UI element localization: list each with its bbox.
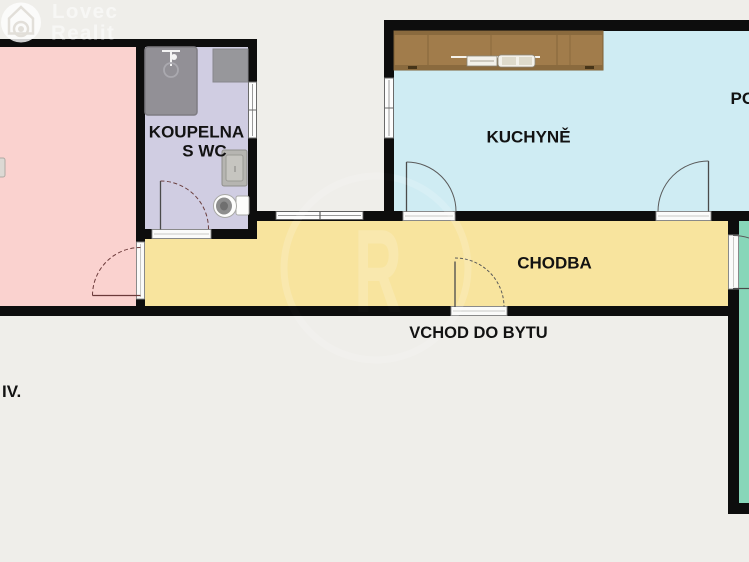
svg-text:CHODBA: CHODBA [517, 254, 592, 273]
svg-text:KOUPELNA: KOUPELNA [149, 123, 244, 142]
svg-text:POKOJ: POKOJ [731, 89, 749, 108]
svg-text:IV.: IV. [2, 382, 21, 401]
svg-text:Realit: Realit [51, 22, 115, 45]
svg-text:Lovec: Lovec [52, 0, 118, 23]
svg-text:R: R [354, 205, 402, 338]
svg-text:KUCHYNĚ: KUCHYNĚ [486, 128, 570, 147]
svg-text:S WC: S WC [182, 142, 226, 161]
